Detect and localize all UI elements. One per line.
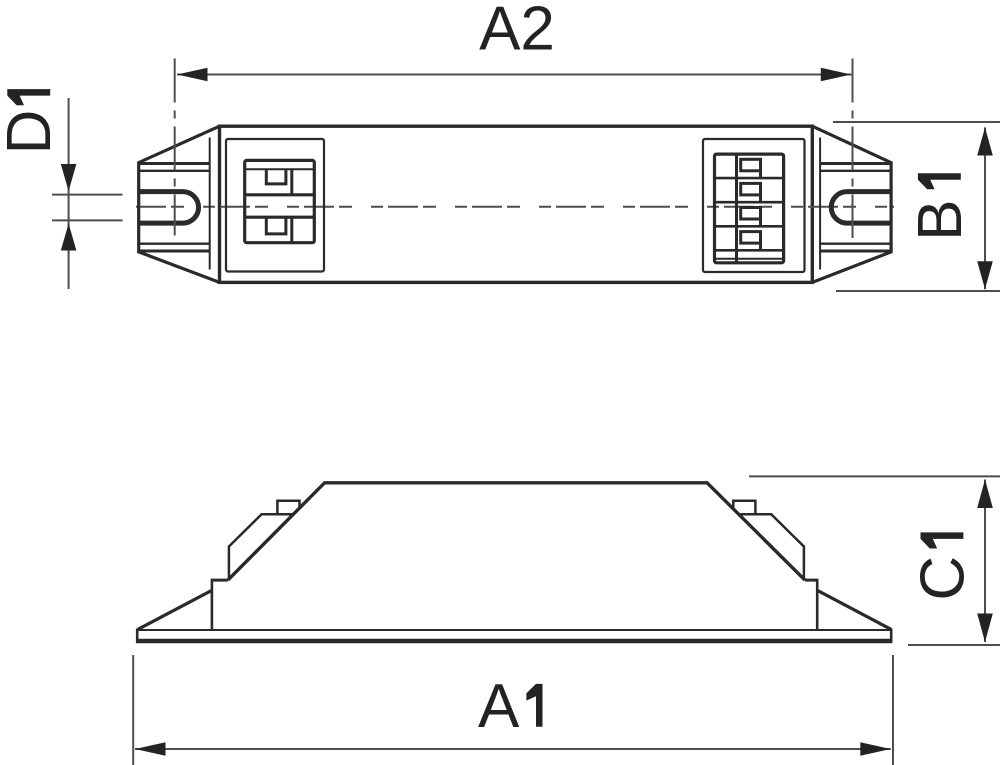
svg-text:A2: A2	[479, 0, 555, 64]
svg-text:D: D	[0, 110, 64, 155]
svg-text:B: B	[906, 199, 975, 240]
svg-text:C: C	[908, 556, 977, 601]
svg-text:A: A	[478, 672, 520, 741]
